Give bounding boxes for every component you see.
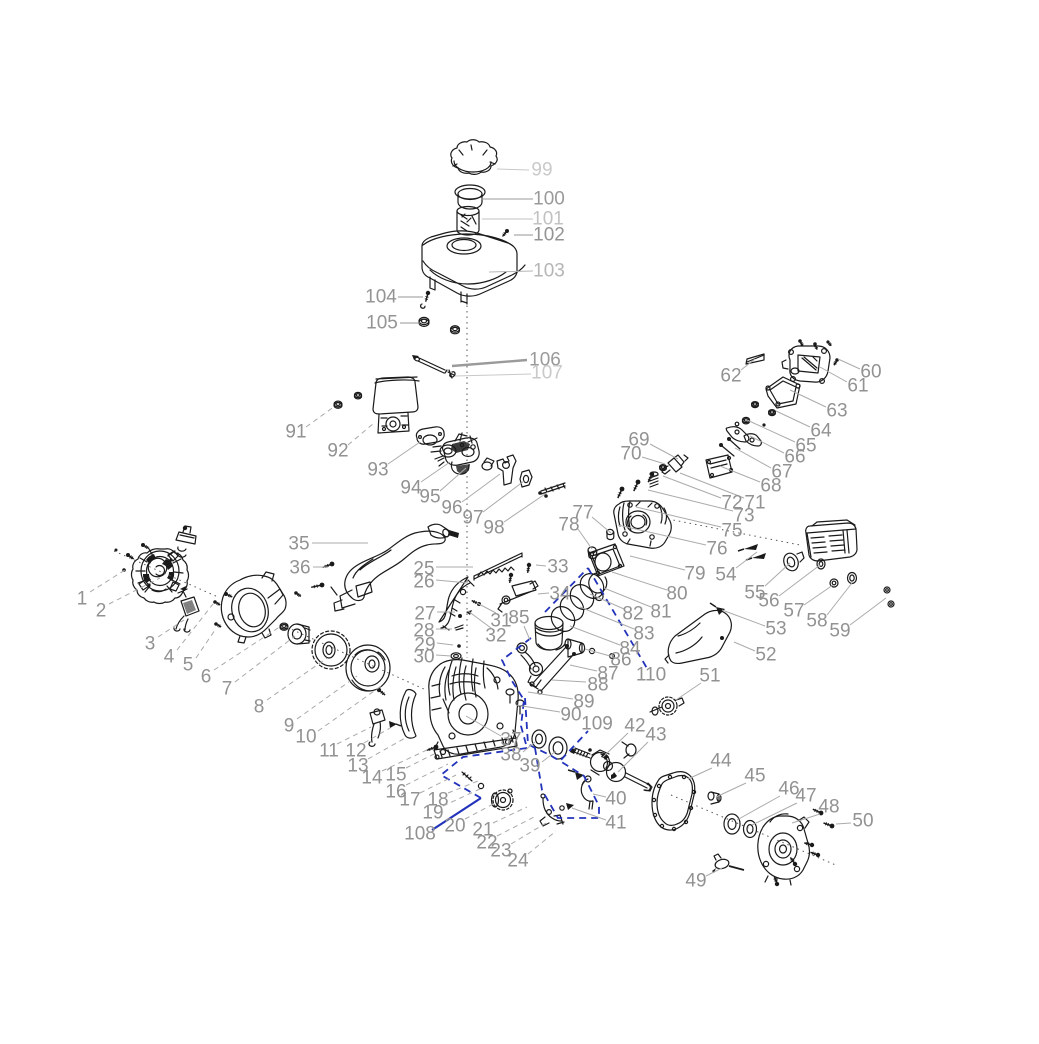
svg-text:52: 52 [755,645,776,666]
svg-text:44: 44 [710,751,732,772]
svg-text:24: 24 [507,851,529,872]
svg-text:41: 41 [605,813,626,834]
svg-text:20: 20 [444,816,465,837]
svg-text:82: 82 [622,604,643,625]
svg-text:3: 3 [145,634,156,655]
svg-text:61: 61 [847,376,868,397]
svg-text:98: 98 [483,518,504,539]
svg-text:70: 70 [620,444,641,465]
svg-text:85: 85 [508,608,529,629]
svg-text:110: 110 [636,665,666,686]
svg-text:1: 1 [77,589,88,610]
svg-text:4: 4 [164,647,175,668]
svg-text:45: 45 [744,766,765,787]
svg-text:26: 26 [413,572,434,593]
svg-text:102: 102 [533,225,565,246]
svg-text:79: 79 [684,564,705,585]
svg-text:103: 103 [533,261,565,282]
svg-text:100: 100 [533,189,565,210]
svg-text:108: 108 [404,824,436,845]
svg-text:57: 57 [783,601,804,622]
svg-text:93: 93 [367,460,388,481]
svg-text:17: 17 [399,790,420,811]
svg-text:43: 43 [645,725,666,746]
svg-text:97: 97 [462,508,483,529]
svg-text:56: 56 [758,591,779,612]
svg-text:59: 59 [829,621,850,642]
svg-text:14: 14 [361,768,383,789]
svg-text:11: 11 [319,741,339,762]
svg-text:6: 6 [201,667,212,688]
svg-text:90: 90 [560,705,581,726]
svg-text:8: 8 [254,697,265,718]
svg-text:33: 33 [547,557,568,578]
svg-text:53: 53 [765,619,786,640]
svg-text:92: 92 [327,441,348,462]
svg-text:38: 38 [500,745,521,766]
svg-text:51: 51 [699,666,720,687]
svg-text:96: 96 [441,498,462,519]
svg-text:10: 10 [295,727,316,748]
svg-text:48: 48 [818,797,839,818]
svg-text:109: 109 [581,714,613,735]
svg-text:99: 99 [531,160,552,181]
svg-text:42: 42 [624,716,645,737]
svg-text:47: 47 [795,786,816,807]
svg-text:5: 5 [183,655,194,676]
svg-text:32: 32 [485,626,506,647]
svg-text:40: 40 [605,789,626,810]
svg-text:7: 7 [222,679,233,700]
svg-text:54: 54 [715,565,737,586]
svg-text:36: 36 [289,558,310,579]
svg-text:58: 58 [806,611,827,632]
svg-text:105: 105 [366,313,398,334]
svg-text:62: 62 [720,366,741,387]
svg-text:95: 95 [419,487,440,508]
svg-text:50: 50 [852,811,873,832]
svg-text:35: 35 [288,534,309,555]
svg-text:19: 19 [422,803,443,824]
svg-text:107: 107 [531,363,563,384]
svg-text:78: 78 [558,515,579,536]
svg-text:39: 39 [519,756,540,777]
svg-text:91: 91 [285,422,306,443]
svg-text:63: 63 [826,401,847,422]
svg-text:9: 9 [284,716,295,737]
svg-text:49: 49 [685,871,706,892]
svg-text:30: 30 [413,647,434,668]
svg-text:34: 34 [549,584,571,605]
svg-text:2: 2 [96,601,107,622]
svg-text:81: 81 [650,602,671,623]
svg-text:104: 104 [365,287,397,308]
svg-text:76: 76 [706,539,727,560]
